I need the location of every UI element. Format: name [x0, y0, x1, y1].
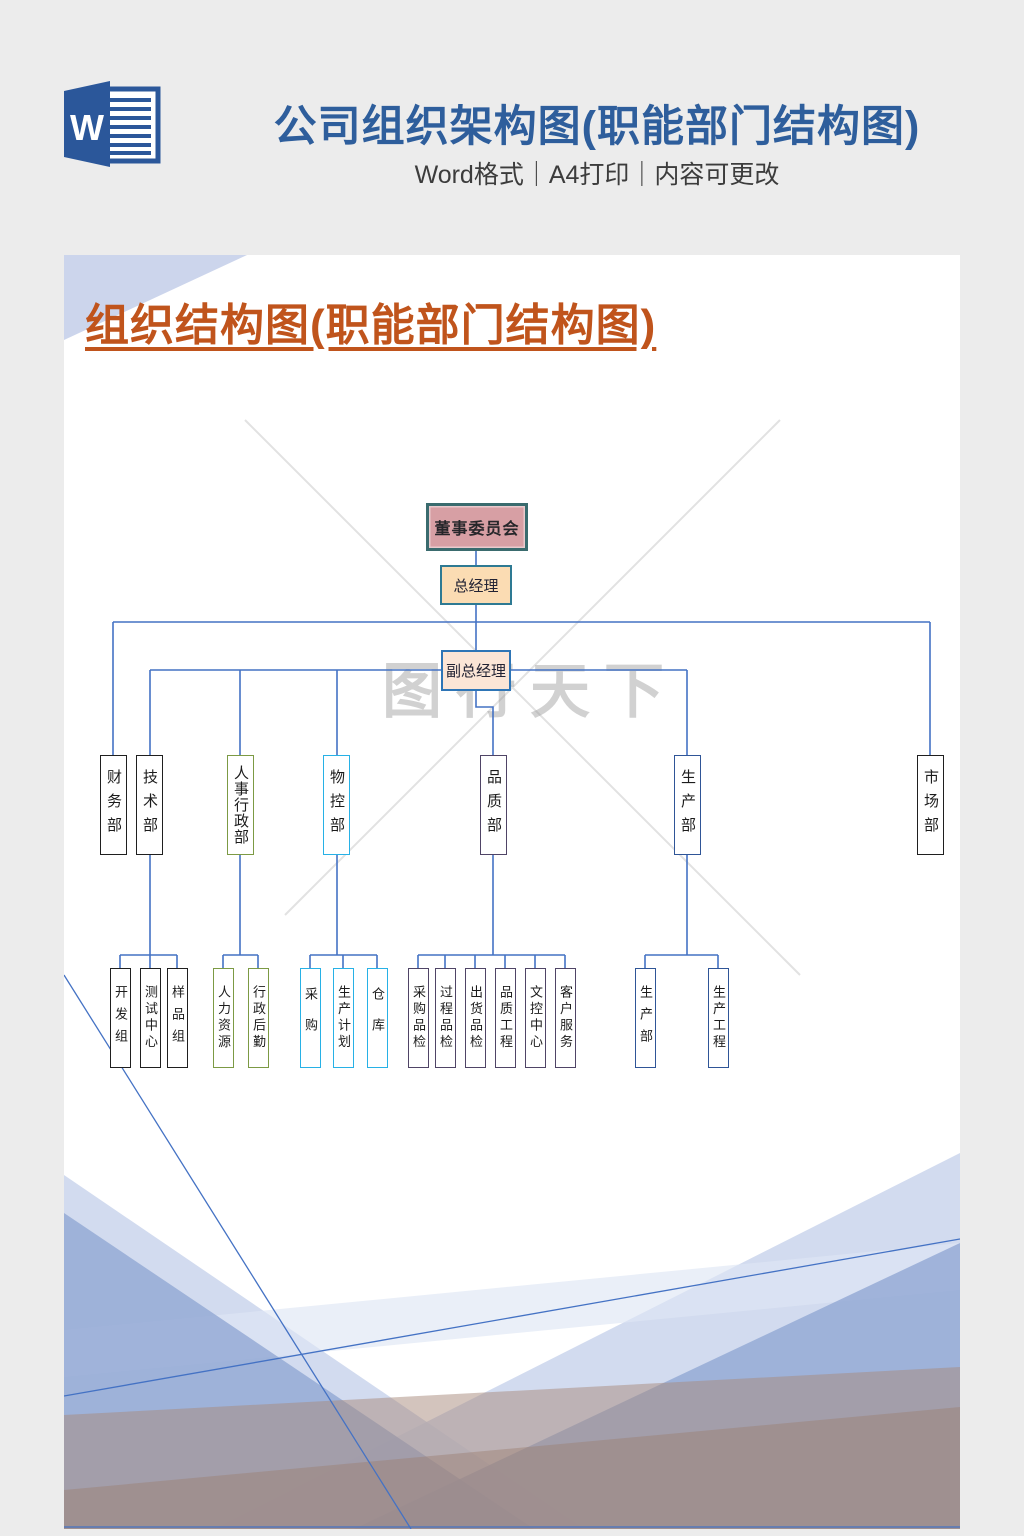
org-dept-market: 市场部: [917, 755, 944, 855]
org-sub-customer-service: 客户服务: [555, 968, 576, 1068]
org-dept-hr-admin: 人事行政部: [227, 755, 254, 855]
word-logo-letter: W: [70, 107, 104, 148]
org-sub-admin-logistics: 行政后勤: [248, 968, 269, 1068]
watermark-text: 图行天下: [382, 643, 678, 730]
org-sub-quality-eng: 品质工程: [495, 968, 516, 1068]
page-background-decoration: [64, 255, 960, 1529]
org-sub-production-plan: 生产计划: [333, 968, 354, 1068]
org-sub-shipment-qc: 出货品检: [465, 968, 486, 1068]
org-dept-finance: 财务部: [100, 755, 127, 855]
document-page: 组织结构图(职能部门结构图) 图行天下 董事委员会 总经理 副总经理 财务部 技…: [64, 255, 960, 1529]
org-sub-test-center: 测试中心: [140, 968, 161, 1068]
org-dept-technology: 技术部: [136, 755, 163, 855]
org-sub-sample-group: 样品组: [167, 968, 188, 1068]
org-sub-human-resource: 人力资源: [213, 968, 234, 1068]
org-node-general-manager: 总经理: [440, 565, 512, 605]
org-sub-production-eng: 生产工程: [708, 968, 729, 1068]
document-heading: 组织结构图(职能部门结构图): [85, 289, 656, 353]
org-sub-purchasing: 采购: [300, 968, 321, 1068]
word-logo-icon: W: [62, 80, 162, 168]
org-node-deputy-gm: 副总经理: [441, 650, 511, 691]
org-sub-process-qc: 过程品检: [435, 968, 456, 1068]
bottom-waves: [64, 1153, 960, 1529]
org-dept-quality: 品质部: [480, 755, 507, 855]
header: W 公司组织架构图(职能部门结构图) Word格式｜A4打印｜内容可更改: [0, 0, 1024, 255]
org-sub-doc-control: 文控中心: [525, 968, 546, 1068]
org-node-board: 董事委员会: [426, 503, 528, 551]
org-dept-production: 生产部: [674, 755, 701, 855]
org-sub-dev-group: 开发组: [110, 968, 131, 1068]
template-subtitle: Word格式｜A4打印｜内容可更改: [170, 155, 1024, 191]
template-preview: { "header": { "word_icon_letter": "W", "…: [0, 0, 1024, 1536]
org-dept-material: 物控部: [323, 755, 350, 855]
org-chart-connectors: [64, 255, 960, 1529]
org-sub-purchase-qc: 采购品检: [408, 968, 429, 1068]
template-title: 公司组织架构图(职能部门结构图): [170, 92, 1024, 154]
org-sub-production-dept: 生产部: [635, 968, 656, 1068]
org-sub-warehouse: 仓库: [367, 968, 388, 1068]
